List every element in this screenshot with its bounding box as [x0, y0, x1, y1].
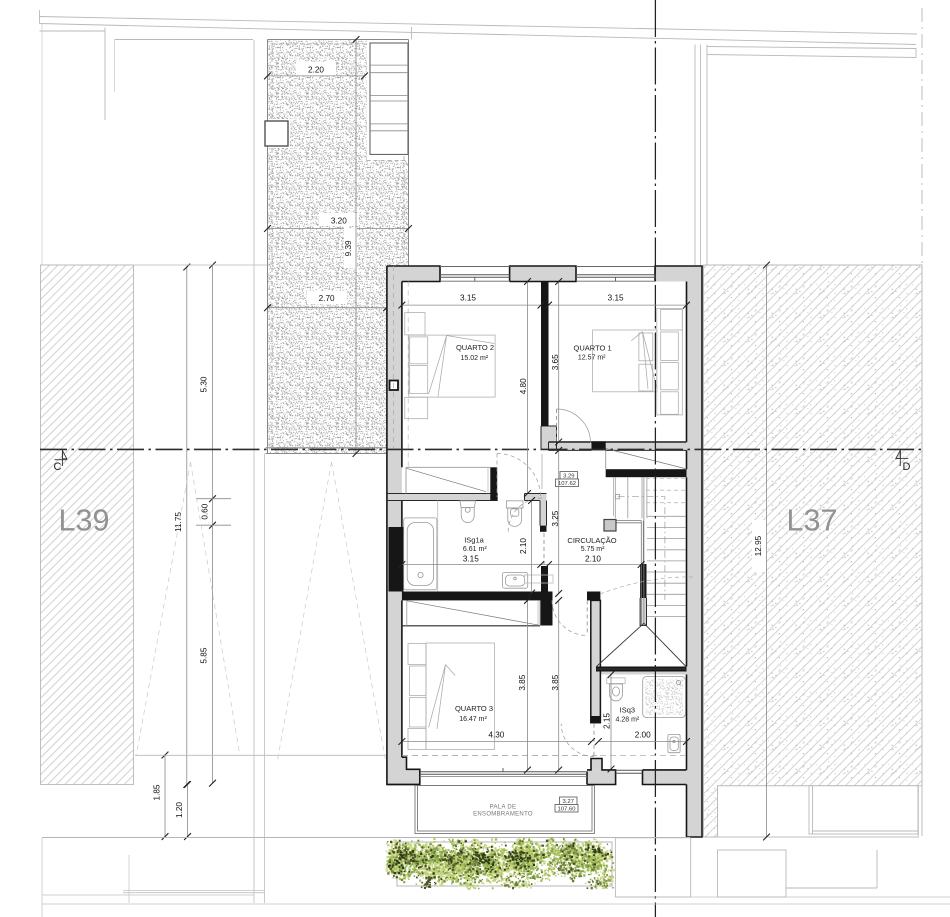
svg-text:9.39: 9.39	[344, 240, 353, 256]
svg-text:CIRCULAÇÃO: CIRCULAÇÃO	[567, 536, 616, 545]
svg-text:ISq3: ISq3	[620, 706, 635, 715]
svg-text:11.75: 11.75	[174, 512, 183, 532]
svg-text:12.57 m²: 12.57 m²	[578, 355, 606, 362]
svg-text:2.70: 2.70	[319, 294, 335, 303]
svg-text:ISg1a: ISg1a	[464, 536, 484, 545]
svg-text:2.15: 2.15	[603, 713, 612, 729]
svg-text:2.10: 2.10	[519, 538, 528, 554]
svg-text:3.65: 3.65	[551, 354, 560, 370]
svg-text:3.25: 3.25	[551, 510, 560, 526]
svg-text:C: C	[54, 461, 62, 473]
svg-text:3.27: 3.27	[562, 799, 573, 805]
svg-text:PALA DE: PALA DE	[490, 805, 517, 811]
svg-text:5.75 m²: 5.75 m²	[581, 546, 605, 553]
svg-text:3.85: 3.85	[551, 674, 560, 690]
svg-text:1.20: 1.20	[175, 802, 184, 818]
svg-text:3.20: 3.20	[331, 216, 347, 225]
svg-text:107.60: 107.60	[557, 806, 576, 812]
svg-text:L39: L39	[59, 504, 110, 538]
svg-text:5.30: 5.30	[200, 376, 209, 392]
svg-text:QUARTO 3: QUARTO 3	[455, 704, 493, 713]
svg-text:3.15: 3.15	[460, 294, 476, 303]
svg-text:2.10: 2.10	[585, 554, 601, 563]
svg-text:3.85: 3.85	[518, 674, 527, 690]
svg-text:D: D	[903, 461, 911, 473]
svg-text:3.29: 3.29	[563, 473, 574, 479]
svg-text:6.61 m²: 6.61 m²	[463, 546, 487, 553]
svg-text:4.28 m²: 4.28 m²	[616, 716, 640, 723]
svg-text:107.62: 107.62	[558, 481, 576, 487]
svg-text:ENSOMBRAMENTO: ENSOMBRAMENTO	[473, 812, 533, 818]
svg-text:12.95: 12.95	[754, 535, 763, 556]
svg-text:16.47 m²: 16.47 m²	[459, 716, 487, 723]
svg-text:4.30: 4.30	[488, 731, 504, 740]
svg-text:4.80: 4.80	[519, 378, 528, 394]
svg-text:3.15: 3.15	[463, 554, 479, 563]
svg-text:1.85: 1.85	[153, 784, 162, 800]
svg-text:5.85: 5.85	[200, 647, 209, 663]
svg-text:0.60: 0.60	[201, 503, 210, 519]
svg-text:15.02 m²: 15.02 m²	[460, 355, 488, 362]
svg-text:L37: L37	[787, 504, 838, 538]
svg-text:3.15: 3.15	[608, 294, 624, 303]
svg-text:QUARTO 2: QUARTO 2	[456, 343, 494, 352]
svg-text:QUARTO 1: QUARTO 1	[574, 344, 612, 353]
svg-text:2.20: 2.20	[308, 66, 324, 75]
svg-text:2.00: 2.00	[635, 731, 651, 740]
